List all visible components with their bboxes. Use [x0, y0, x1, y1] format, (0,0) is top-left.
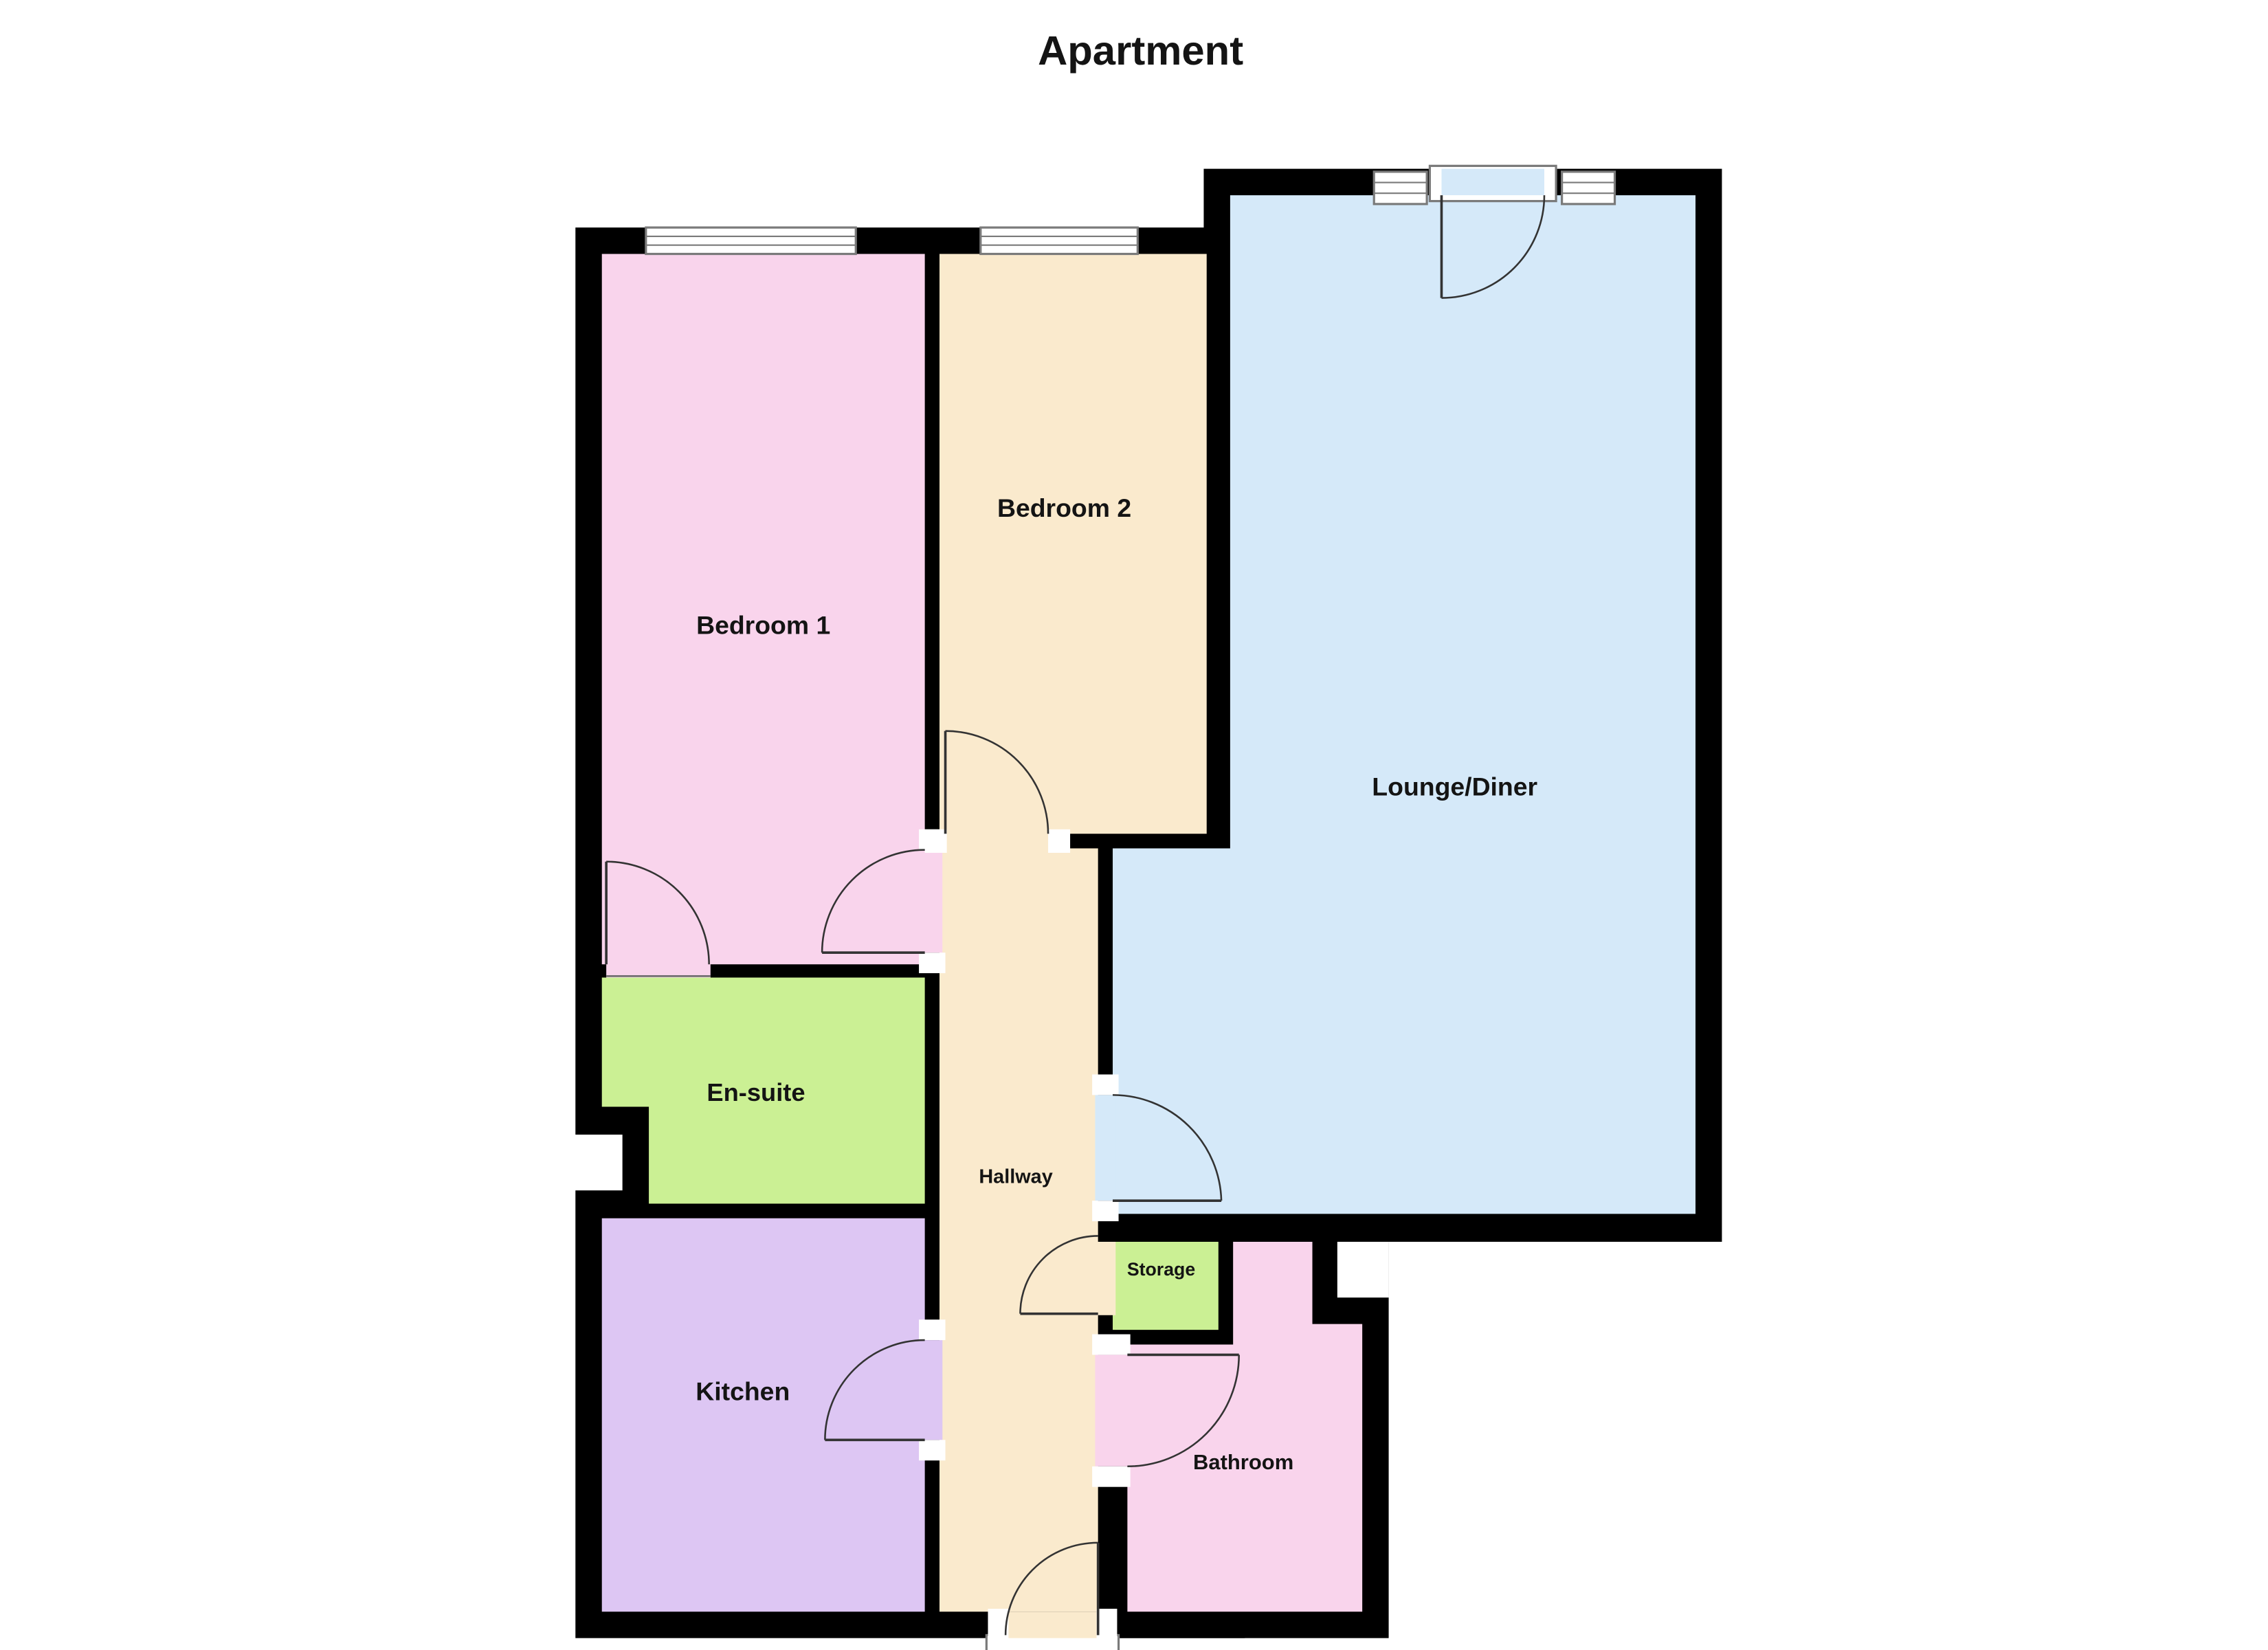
door-opening — [922, 1340, 942, 1440]
door-jamb — [1092, 1335, 1131, 1355]
door-opening — [1095, 1354, 1130, 1466]
window-icon — [1562, 172, 1615, 204]
window-icon — [981, 227, 1138, 254]
door-jamb — [1092, 1201, 1118, 1221]
door-opening — [1095, 1242, 1115, 1315]
door-jamb — [1092, 1467, 1131, 1487]
door-opening — [1007, 1612, 1098, 1638]
door-jamb — [1048, 829, 1070, 853]
room-label-storage: Storage — [1127, 1259, 1195, 1280]
page-title: Apartment — [1038, 27, 1243, 74]
door-jamb — [919, 1440, 945, 1460]
room-label-bedroom-2: Bedroom 2 — [997, 493, 1131, 522]
room-hallway — [940, 849, 1098, 1612]
room-bedroom-2 — [940, 254, 1207, 834]
room-label-bathroom: Bathroom — [1193, 1450, 1293, 1474]
room-kitchen — [602, 1218, 925, 1612]
door-opening — [1441, 169, 1544, 195]
wall-notch — [1337, 1242, 1389, 1297]
door-jamb — [919, 952, 945, 973]
window-icon — [646, 227, 856, 254]
door-opening — [1095, 1095, 1115, 1201]
floorplan-page: Apartment Bedroom 1Bedroom 2Lounge/Diner… — [0, 0, 2268, 1650]
wall-notch — [549, 1135, 623, 1190]
room-label-hallway: Hallway — [979, 1166, 1052, 1188]
room-label-bedroom-1: Bedroom 1 — [696, 611, 830, 640]
room-bedroom-1 — [602, 254, 925, 965]
floorplan-svg: Apartment Bedroom 1Bedroom 2Lounge/Diner… — [0, 0, 2268, 1650]
room-label-kitchen: Kitchen — [696, 1377, 790, 1406]
room-storage — [1113, 1242, 1219, 1330]
door-jamb — [1097, 1609, 1118, 1641]
window-icon — [1374, 172, 1427, 204]
door-jamb — [919, 1319, 945, 1340]
door-jamb — [925, 829, 947, 853]
door-opening — [946, 831, 1050, 851]
room-label-lounge-diner: Lounge/Diner — [1372, 772, 1537, 801]
room-label-en-suite: En-suite — [707, 1078, 805, 1106]
door-jamb — [1092, 1074, 1118, 1095]
door-opening — [922, 850, 942, 953]
